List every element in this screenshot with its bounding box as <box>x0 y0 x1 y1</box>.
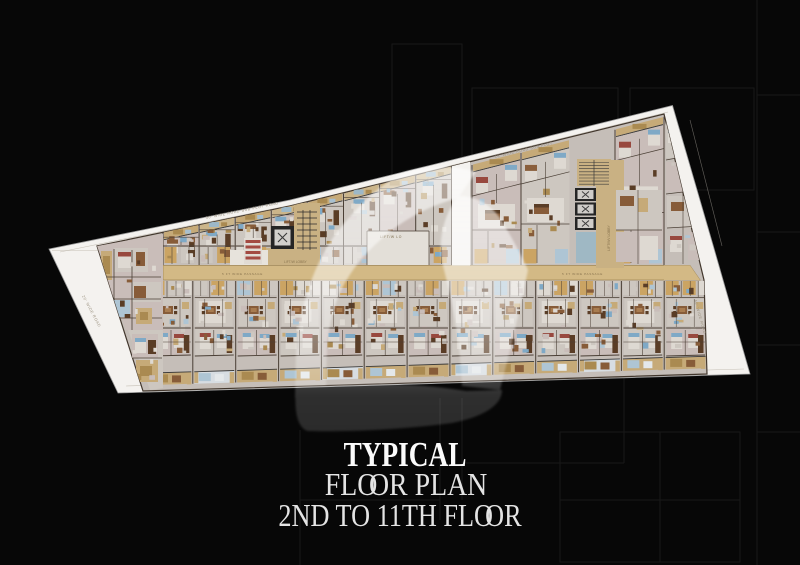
svg-text:LIFT/W LOBBY: LIFT/W LOBBY <box>284 260 308 264</box>
svg-text:5 FT WIDE PASSAGE: 5 FT WIDE PASSAGE <box>562 272 603 276</box>
svg-text:LIFT/WV LOBBY: LIFT/WV LOBBY <box>607 224 611 250</box>
svg-text:5 FT WIDE PASSAGE: 5 FT WIDE PASSAGE <box>222 272 263 276</box>
